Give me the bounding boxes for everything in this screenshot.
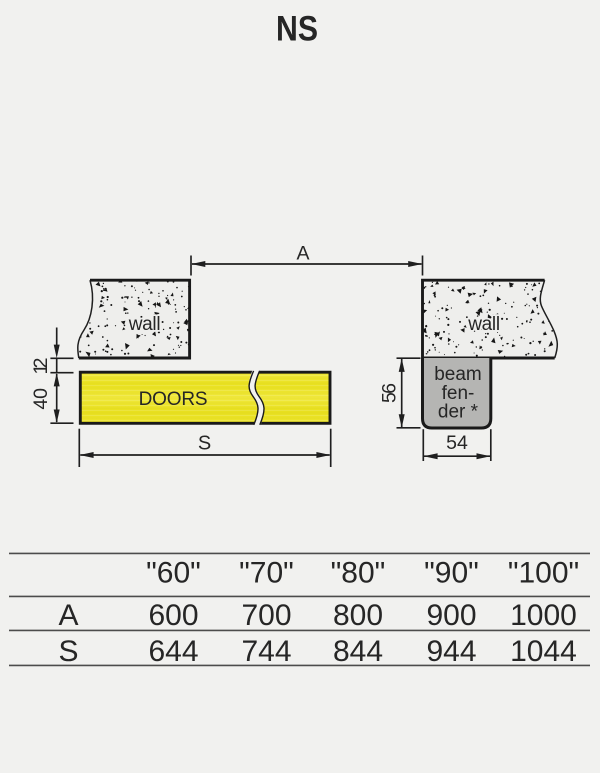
svg-text:"70": "70" [239, 557, 294, 590]
svg-text:800: 800 [333, 599, 383, 632]
svg-text:700: 700 [241, 599, 291, 632]
svg-text:12: 12 [30, 358, 52, 375]
svg-text:A: A [58, 599, 78, 632]
svg-text:56: 56 [378, 383, 400, 403]
svg-text:1000: 1000 [510, 599, 577, 632]
svg-text:A: A [296, 243, 309, 265]
svg-text:"100": "100" [508, 557, 579, 590]
svg-text:900: 900 [426, 599, 476, 632]
svg-text:54: 54 [446, 432, 468, 454]
svg-text:"60": "60" [146, 557, 201, 590]
svg-text:S: S [58, 635, 78, 668]
svg-text:wall: wall [467, 314, 500, 335]
svg-text:wall: wall [128, 314, 161, 335]
svg-text:S: S [198, 432, 211, 454]
svg-text:"80": "80" [331, 557, 386, 590]
svg-text:NS: NS [276, 10, 318, 49]
svg-text:"90": "90" [424, 557, 479, 590]
svg-text:beam: beam [434, 364, 482, 385]
svg-text:DOORS: DOORS [139, 389, 208, 410]
svg-text:1044: 1044 [510, 635, 577, 668]
svg-text:844: 844 [333, 635, 383, 668]
svg-text:600: 600 [148, 599, 198, 632]
svg-text:944: 944 [426, 635, 476, 668]
svg-text:744: 744 [241, 635, 291, 668]
svg-text:644: 644 [148, 635, 198, 668]
svg-text:der *: der * [438, 401, 479, 422]
svg-text:40: 40 [30, 388, 52, 410]
